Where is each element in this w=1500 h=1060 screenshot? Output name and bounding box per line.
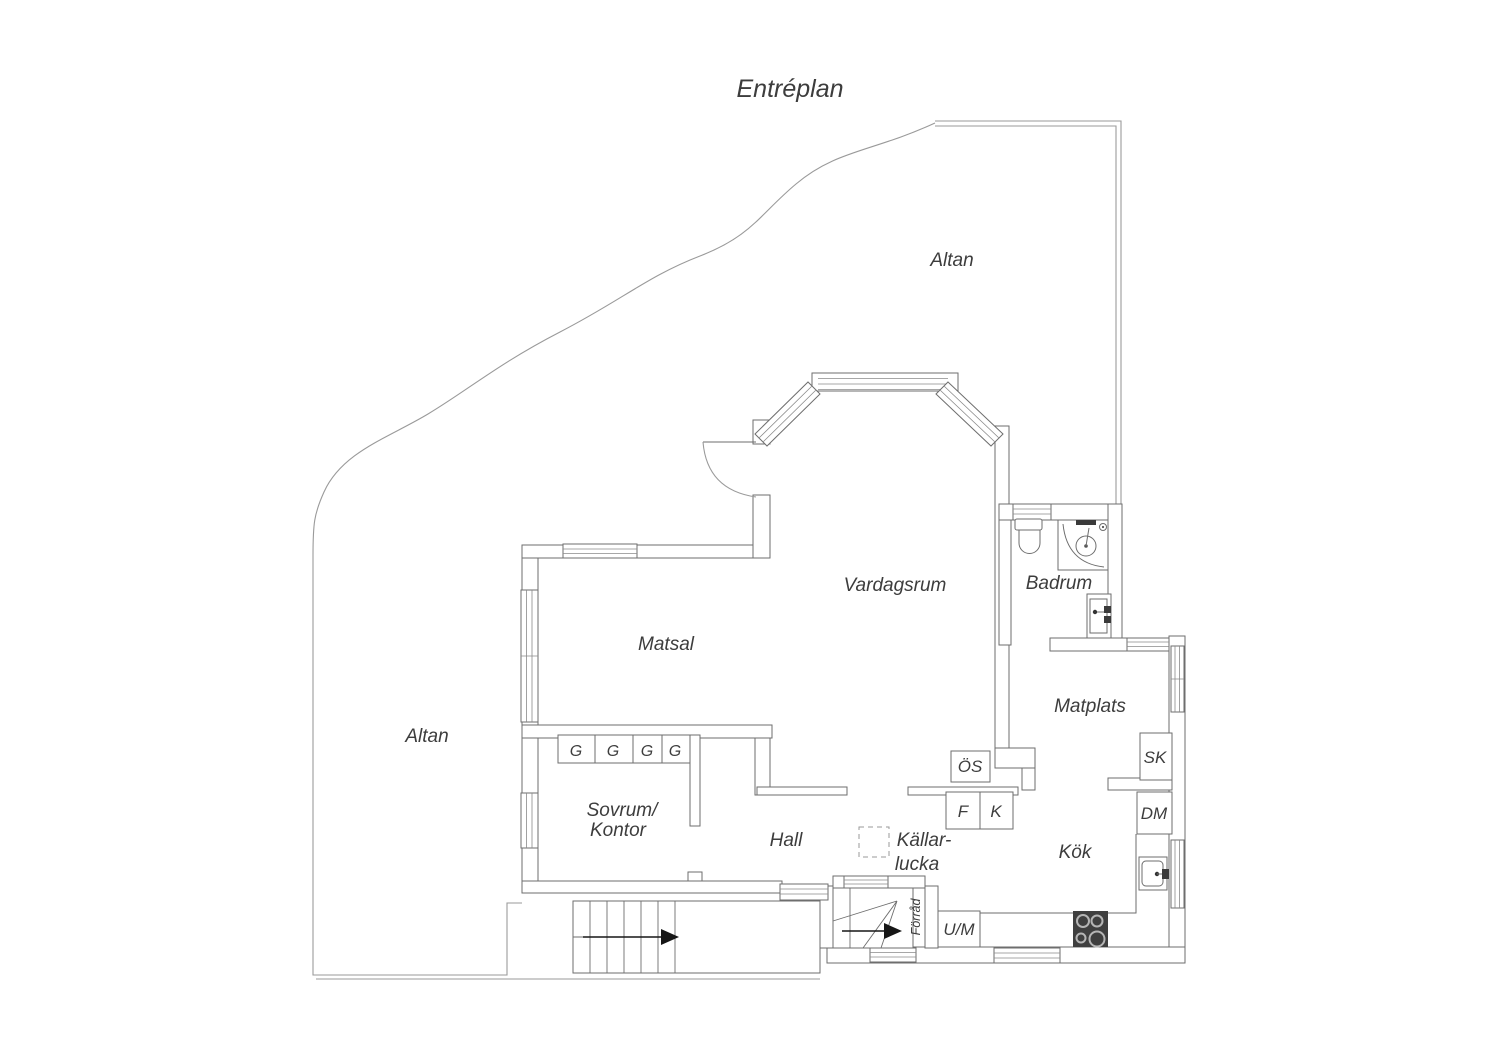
window-matsal-north	[563, 544, 637, 558]
room-label-kallarlucka-line1: Källar-	[897, 830, 952, 851]
os-label: ÖS	[958, 757, 983, 776]
room-label-hall: Hall	[770, 830, 804, 851]
window-badrum-north	[1013, 504, 1051, 520]
room-label-kok: Kök	[1059, 842, 1093, 863]
window-south-1	[870, 948, 916, 962]
room-label-sovrum-line1: Sovrum/	[587, 800, 659, 821]
room-label-altan-top: Altan	[929, 250, 973, 271]
dm-label: DM	[1141, 804, 1168, 823]
window-porch-top	[844, 876, 888, 888]
window-east-kitchen	[1171, 840, 1184, 908]
stove	[1073, 911, 1108, 947]
plan-title: Entréplan	[736, 75, 843, 103]
room-label-vardagsrum: Vardagsrum	[844, 575, 947, 596]
wardrobe-label-2: G	[607, 743, 619, 760]
window-hall-south	[780, 884, 828, 900]
floor-plan-page: Entréplan Altan Altan Vardagsrum Matsal …	[0, 0, 1500, 1060]
room-label-badrum: Badrum	[1026, 573, 1093, 594]
bathroom-sink	[1087, 594, 1111, 638]
window-east-matplats	[1171, 646, 1184, 712]
wardrobe-label-4: G	[669, 743, 681, 760]
stairs-basement	[833, 888, 913, 948]
forrad-label: Förråd	[909, 898, 923, 936]
kitchen-sink	[1139, 857, 1169, 890]
sk-label: SK	[1144, 748, 1167, 767]
window-south-2	[994, 948, 1060, 963]
floor-plan-svg: Entréplan Altan Altan Vardagsrum Matsal …	[0, 0, 1500, 1060]
room-label-sovrum-line2: Kontor	[590, 820, 647, 841]
window-matplats-north	[1127, 638, 1169, 651]
room-label-kallarlucka-line2: lucka	[895, 854, 939, 875]
freezer-label: K	[990, 802, 1002, 821]
window-west-2	[521, 793, 538, 848]
fridge-freezer-cabinet	[946, 792, 1013, 829]
wardrobe-label-1: G	[570, 743, 582, 760]
room-label-altan-left: Altan	[404, 726, 448, 747]
room-label-matplats: Matplats	[1054, 696, 1126, 717]
um-label: U/M	[943, 920, 975, 939]
wardrobe-label-3: G	[641, 743, 653, 760]
fridge-label: F	[958, 802, 970, 821]
room-label-matsal: Matsal	[638, 634, 695, 655]
window-west-1	[521, 590, 538, 722]
stairs-entrance	[573, 901, 820, 973]
